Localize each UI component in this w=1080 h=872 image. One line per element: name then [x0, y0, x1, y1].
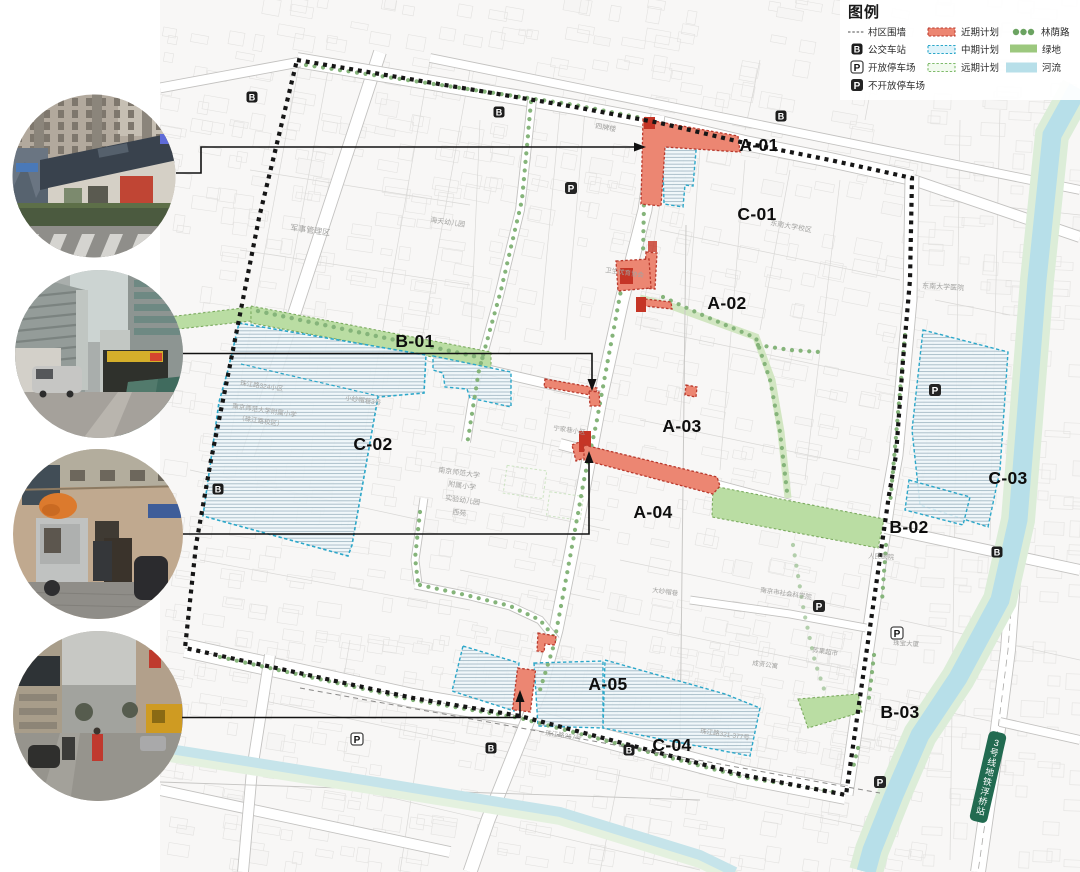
- svg-text:河流: 河流: [1042, 62, 1062, 74]
- svg-text:C-04: C-04: [652, 735, 691, 755]
- svg-text:P: P: [877, 778, 884, 789]
- svg-text:B: B: [488, 743, 495, 753]
- svg-text:A-01: A-01: [739, 135, 778, 155]
- svg-text:B-01: B-01: [395, 331, 434, 351]
- svg-text:A-02: A-02: [707, 293, 746, 313]
- svg-text:B: B: [215, 484, 222, 494]
- svg-text:C-03: C-03: [988, 468, 1027, 488]
- svg-text:B: B: [496, 107, 503, 117]
- svg-text:绿地: 绿地: [1042, 44, 1062, 56]
- svg-text:C-02: C-02: [353, 434, 392, 454]
- svg-text:近期计划: 近期计划: [961, 27, 999, 39]
- svg-text:B-03: B-03: [880, 702, 919, 722]
- svg-text:P: P: [568, 184, 575, 195]
- svg-text:村区围墙: 村区围墙: [868, 27, 907, 39]
- svg-text:B: B: [626, 745, 633, 755]
- svg-text:P: P: [854, 81, 861, 92]
- svg-text:开放停车场: 开放停车场: [868, 62, 916, 74]
- svg-text:A-05: A-05: [588, 674, 627, 694]
- svg-text:A-03: A-03: [662, 416, 701, 436]
- svg-text:B: B: [994, 547, 1001, 557]
- svg-text:C-01: C-01: [737, 204, 776, 224]
- svg-text:不开放停车场: 不开放停车场: [868, 80, 925, 92]
- svg-text:B-02: B-02: [889, 517, 928, 537]
- svg-text:P: P: [854, 63, 861, 74]
- svg-text:A-04: A-04: [633, 502, 672, 522]
- svg-text:图例: 图例: [848, 3, 880, 21]
- svg-text:远期计划: 远期计划: [961, 62, 999, 74]
- svg-text:P: P: [816, 602, 823, 613]
- svg-text:中期计划: 中期计划: [961, 44, 999, 56]
- svg-text:B: B: [249, 92, 256, 102]
- svg-text:林荫路: 林荫路: [1041, 27, 1070, 39]
- svg-text:公交车站: 公交车站: [868, 44, 907, 56]
- svg-text:B: B: [854, 44, 861, 54]
- svg-text:P: P: [932, 386, 939, 397]
- svg-text:P: P: [894, 629, 901, 640]
- svg-text:P: P: [354, 735, 361, 746]
- svg-text:B: B: [778, 111, 785, 121]
